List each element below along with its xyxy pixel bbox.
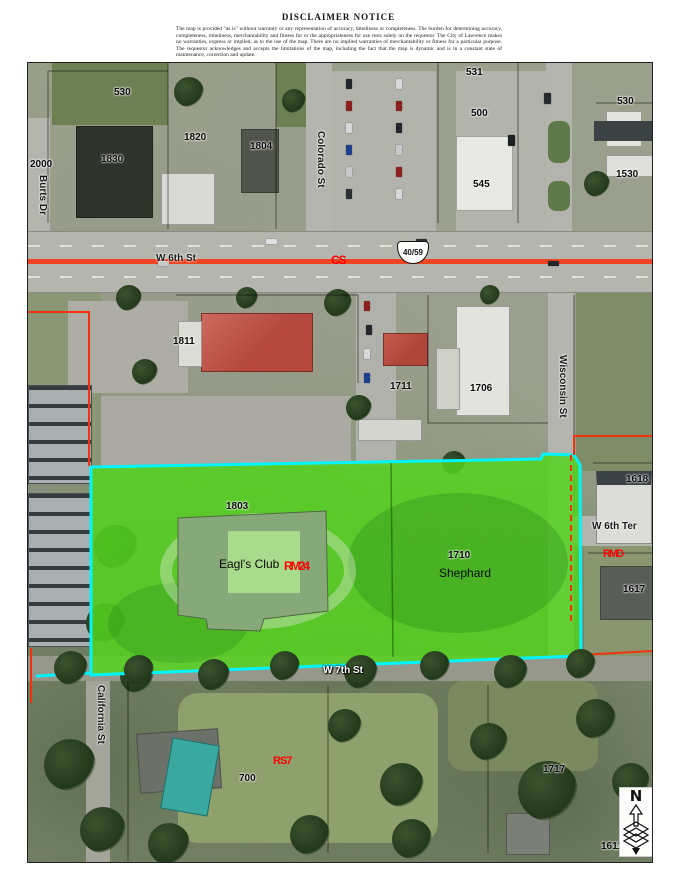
tree	[494, 655, 528, 689]
address-label: 545	[473, 179, 490, 190]
address-label: 1618	[626, 474, 648, 485]
address-label: 1830	[101, 154, 123, 165]
zoning-label-subject: RM24	[284, 559, 308, 573]
street-label-california-st: California St	[95, 685, 106, 744]
tree	[576, 699, 616, 739]
tree	[392, 819, 432, 859]
tree	[270, 651, 300, 681]
street-label-w6th-ter: W 6th Ter	[592, 521, 637, 532]
zoning-label-south: RS7	[273, 755, 291, 767]
tree	[566, 649, 596, 679]
north-label: N	[630, 789, 643, 804]
address-label: 1811	[173, 336, 195, 347]
parcel-name-eagles-club: Eagl's Club	[219, 557, 279, 571]
address-label: 1530	[616, 169, 638, 180]
street-label-w6th-st: W 6th St	[156, 253, 196, 264]
map-document-page: DISCLAIMER NOTICE The map is provided "a…	[0, 0, 677, 876]
address-label: 1717	[543, 764, 565, 775]
address-label: 1617	[623, 584, 645, 595]
street-label-burts-dr: Burts Dr	[37, 175, 48, 215]
parcel-number-1803: 1803	[226, 501, 248, 512]
disclaimer-body: The map is provided "as is" without warr…	[176, 26, 502, 59]
tree	[328, 709, 362, 743]
address-label: 1706	[470, 383, 492, 394]
north-arrow-icon	[620, 804, 652, 856]
address-label: 1711	[390, 381, 412, 392]
tree	[44, 739, 96, 791]
address-label: 1804	[250, 141, 272, 152]
street-label-wisconsin-st: Wisconsin St	[557, 355, 568, 418]
street-label-w7th-st: W 7th St	[323, 665, 363, 676]
address-label: 2000	[30, 159, 52, 170]
address-label: 530	[114, 87, 131, 98]
parcel-number-1710: 1710	[448, 550, 470, 561]
address-label: 500	[471, 108, 488, 119]
north-arrow: N	[619, 787, 653, 857]
highway-shield-label: 40/59	[403, 248, 423, 257]
address-label: 700	[239, 773, 256, 784]
disclaimer-title: DISCLAIMER NOTICE	[0, 12, 677, 22]
tree	[148, 823, 190, 863]
tree	[198, 659, 230, 691]
tree	[80, 807, 126, 853]
zoning-label-cs: CS	[331, 253, 346, 267]
parcel-texture	[348, 493, 568, 633]
tree	[54, 651, 88, 685]
street-label-colorado-st: Colorado St	[315, 131, 326, 188]
aerial-map: W 6th St CS 40/59 Burts Dr Colorado St W…	[27, 62, 653, 863]
address-label: 530	[617, 96, 634, 107]
address-label: 1820	[184, 132, 206, 143]
tree	[380, 763, 424, 807]
parcel-name-shephard: Shephard	[439, 566, 491, 580]
tree	[420, 651, 450, 681]
zoning-label-east: RMD	[603, 548, 622, 560]
address-label: 531	[466, 67, 483, 78]
tree	[470, 723, 508, 761]
tree	[290, 815, 330, 855]
tree	[124, 655, 154, 685]
